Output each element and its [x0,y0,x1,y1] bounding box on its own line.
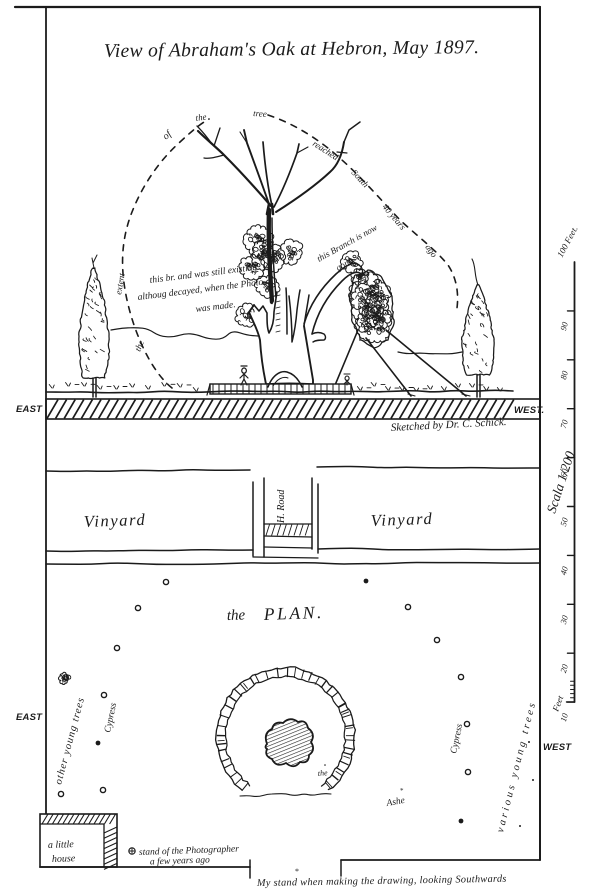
svg-text:EAST: EAST [16,712,43,723]
svg-text:a few years ago: a few years ago [150,854,210,867]
svg-text:Vinyard: Vinyard [83,510,146,531]
svg-text:WEST.: WEST. [514,405,544,416]
svg-text:Vinyard: Vinyard [370,509,433,530]
svg-text:house: house [52,853,76,865]
svg-text:*: * [400,787,404,795]
svg-text:PLAN.: PLAN. [262,602,324,624]
svg-text:tree: tree [253,108,267,119]
svg-text:the: the [317,768,328,778]
svg-text:the: the [195,112,207,123]
svg-text:WEST: WEST [543,742,572,753]
svg-text:*: * [295,867,299,876]
svg-text:the: the [227,607,246,624]
svg-text:a little: a little [48,839,75,851]
svg-text:EAST: EAST [16,404,43,415]
svg-text:H. Road: H. Road [276,489,287,524]
svg-text:View of Abraham's Oak at Hebro: View of Abraham's Oak at Hebron, May 189… [104,37,480,62]
